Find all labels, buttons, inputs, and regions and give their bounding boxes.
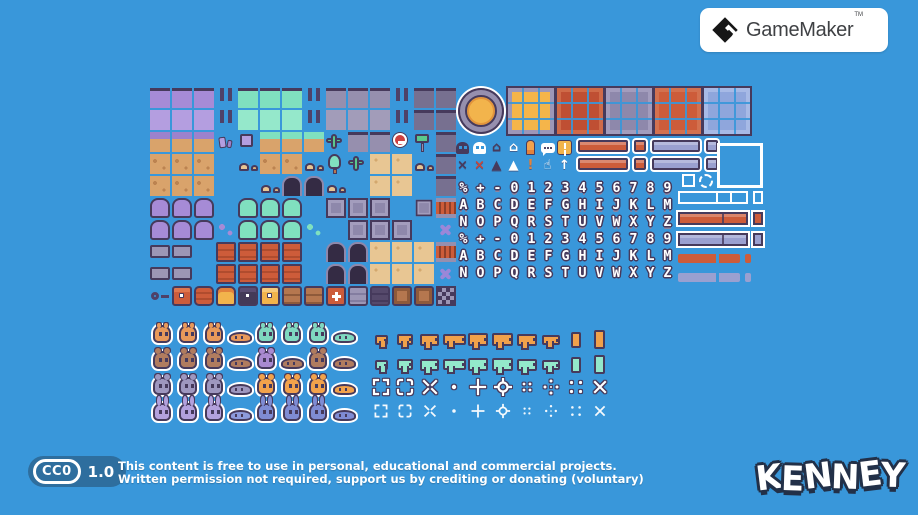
tile-teal-bush bbox=[282, 220, 302, 240]
tile-empty bbox=[414, 176, 434, 196]
character-ears bbox=[313, 323, 317, 328]
font-glyph: T bbox=[557, 265, 574, 282]
character-bunny bbox=[153, 403, 171, 421]
weapon-cell bbox=[393, 352, 417, 377]
font-glyph: I bbox=[591, 197, 608, 214]
font-glyph: H bbox=[574, 248, 591, 265]
character-sprites bbox=[149, 319, 357, 423]
character-cell bbox=[149, 397, 175, 423]
tile-dirt bbox=[172, 176, 192, 196]
weapon-pistol-small bbox=[375, 335, 388, 345]
icon-sprites-grid: ⌂⌂××▲▲!☝↑ bbox=[455, 140, 574, 176]
tile-stone-top bbox=[348, 88, 368, 108]
tile-purple-pebbles bbox=[216, 220, 236, 240]
weapon-rifle bbox=[443, 334, 466, 345]
character-ears bbox=[311, 374, 317, 380]
font-row: %+-0123456789 bbox=[455, 231, 676, 248]
tile-rocks bbox=[304, 154, 324, 174]
crosshair-x-mark-svg bbox=[591, 378, 609, 396]
character-cell bbox=[305, 345, 331, 371]
empty-frame-sprite bbox=[717, 143, 763, 188]
weapon-pistol bbox=[397, 334, 413, 345]
tile-sand bbox=[392, 176, 412, 196]
tile-tree bbox=[326, 154, 346, 174]
font-glyph: 3 bbox=[557, 231, 574, 248]
font-glyph: L bbox=[642, 248, 659, 265]
tile-dark-stone bbox=[436, 88, 456, 108]
progress-lavender-flat bbox=[678, 273, 740, 282]
weapon-cell bbox=[490, 352, 514, 377]
tile-chest-yellow bbox=[260, 286, 280, 306]
tile-purple-dirt-transition bbox=[150, 132, 170, 152]
tile-dark-stone bbox=[436, 110, 456, 130]
character-cell bbox=[175, 397, 201, 423]
character-frog-sleeping bbox=[333, 410, 356, 421]
font-glyph: Y bbox=[642, 265, 659, 282]
gamemaker-icon bbox=[713, 18, 737, 42]
character-ears bbox=[183, 396, 187, 406]
tile-teal-grass-fill bbox=[238, 110, 258, 130]
crosshair-diamond-dots bbox=[539, 399, 563, 423]
font-glyph: 8 bbox=[642, 231, 659, 248]
font-glyph: K bbox=[625, 248, 642, 265]
tile-teal-bush bbox=[260, 198, 280, 218]
character-cell bbox=[331, 319, 357, 345]
character-bunny-sleeping bbox=[229, 410, 252, 421]
weapon-cell bbox=[588, 352, 612, 377]
font-glyph: U bbox=[574, 214, 591, 231]
triangle-icon-white: ▲ bbox=[506, 158, 521, 173]
weapon-cell bbox=[369, 327, 393, 352]
weapon-assault-rifle bbox=[492, 358, 513, 371]
font-glyph: - bbox=[489, 180, 506, 197]
tile-barrel bbox=[194, 286, 214, 306]
weapon-magazine bbox=[571, 357, 581, 373]
character-cell bbox=[175, 319, 201, 345]
progress-lavender-row bbox=[678, 233, 763, 246]
warning-icon bbox=[557, 140, 572, 155]
progress-lavender-flat-row bbox=[678, 273, 763, 282]
font-glyph: W bbox=[608, 214, 625, 231]
tile-shuriken bbox=[436, 220, 456, 240]
font-glyph: D bbox=[506, 197, 523, 214]
tile-purple-block bbox=[238, 132, 258, 152]
arrow-up-icon: ↑ bbox=[557, 158, 572, 173]
font-glyph: + bbox=[472, 180, 489, 197]
font-glyph: P bbox=[489, 265, 506, 282]
weapon-cell bbox=[418, 352, 442, 377]
tile-purple-bush bbox=[194, 220, 214, 240]
character-cell bbox=[149, 319, 175, 345]
weapon-spear bbox=[594, 355, 605, 374]
tile-sand bbox=[392, 154, 412, 174]
character-chick bbox=[283, 377, 301, 395]
license-text: This content is free to use in personal,… bbox=[118, 460, 644, 485]
tile-purple-bush bbox=[172, 198, 192, 218]
tile-teal-pebbles bbox=[304, 220, 324, 240]
character-ears bbox=[155, 348, 161, 354]
tile-shelf bbox=[392, 286, 412, 306]
character-frog bbox=[309, 403, 327, 421]
progress-outline bbox=[678, 191, 748, 204]
skull-icon-dark bbox=[455, 140, 470, 155]
crosshair-corners bbox=[369, 399, 393, 423]
character-cell bbox=[227, 397, 253, 423]
font-glyph: % bbox=[455, 180, 472, 197]
tile-hanging-posts bbox=[304, 110, 324, 123]
tile-doorway-arch bbox=[304, 176, 324, 196]
weapon-cell bbox=[563, 327, 587, 352]
weapon-cell bbox=[442, 352, 466, 377]
cc0-license-badge[interactable]: CC0 1.0 bbox=[28, 456, 126, 487]
font-glyph: R bbox=[523, 265, 540, 282]
ui-panels-row bbox=[508, 88, 750, 134]
font-glyph: F bbox=[540, 248, 557, 265]
kenney-letter: N bbox=[801, 455, 833, 498]
tile-shuriken bbox=[436, 264, 456, 284]
font-glyph: Y bbox=[642, 214, 659, 231]
font-glyph: C bbox=[489, 197, 506, 214]
character-ears bbox=[313, 396, 317, 406]
tile-purple-dirt-transition bbox=[172, 132, 192, 152]
tile-dark-stone bbox=[436, 176, 456, 196]
tile-doorway-arch bbox=[348, 242, 368, 262]
tile-empty bbox=[216, 198, 236, 218]
font-glyph: 0 bbox=[506, 180, 523, 197]
progress-outline-cap bbox=[753, 191, 763, 204]
font-glyph: 5 bbox=[591, 180, 608, 197]
crosshair-corners bbox=[369, 375, 393, 399]
crosshair-x-arrows-svg bbox=[423, 404, 437, 418]
tile-purple-grass-fill bbox=[194, 110, 214, 130]
selection-square-sprite bbox=[682, 174, 695, 187]
font-glyph: 6 bbox=[608, 180, 625, 197]
tile-rocks bbox=[414, 154, 434, 174]
font-glyph: G bbox=[557, 197, 574, 214]
tile-empty bbox=[194, 264, 214, 284]
character-sloth bbox=[281, 358, 304, 369]
tile-dark-stone bbox=[436, 154, 456, 174]
tile-key bbox=[150, 286, 170, 306]
character-ears bbox=[207, 348, 213, 354]
crosshair-quad-dots-svg bbox=[568, 404, 582, 418]
tile-empty bbox=[194, 242, 214, 262]
character-ears bbox=[259, 374, 265, 380]
tile-hanging-posts bbox=[216, 88, 236, 101]
kenney-letter: E bbox=[856, 453, 883, 495]
tile-teal-grass-top bbox=[260, 88, 280, 108]
crosshair-dot-svg bbox=[447, 404, 461, 418]
tile-teal-grass-top bbox=[282, 88, 302, 108]
font-glyph: A bbox=[455, 197, 472, 214]
font-glyph: O bbox=[472, 214, 489, 231]
font-glyph: E bbox=[523, 197, 540, 214]
character-cell bbox=[149, 345, 175, 371]
character-chick-sleeping bbox=[333, 384, 356, 395]
crosshair-target-svg bbox=[495, 404, 509, 418]
tile-purple-grass-top bbox=[150, 88, 170, 108]
tile-metal-panel bbox=[392, 220, 412, 240]
character-ears bbox=[183, 323, 187, 328]
selection-circle-sprite bbox=[699, 174, 713, 188]
font-glyph: M bbox=[659, 248, 676, 265]
kenney-logo[interactable]: KENNEY bbox=[755, 454, 905, 499]
crosshair-plus bbox=[466, 399, 490, 423]
crosshair-dots-grid-svg bbox=[520, 404, 534, 418]
font-glyph: E bbox=[523, 248, 540, 265]
tile-purple-grass-fill bbox=[172, 110, 192, 130]
font-glyph: 8 bbox=[642, 180, 659, 197]
font-glyph: J bbox=[608, 197, 625, 214]
tile-metal-panel bbox=[326, 198, 346, 218]
weapon-smg bbox=[468, 333, 488, 346]
crosshair-x-mark bbox=[588, 375, 612, 399]
bar-lavender-wide bbox=[652, 140, 700, 152]
tile-orange-platform bbox=[238, 242, 258, 262]
font-glyph: Z bbox=[659, 265, 676, 282]
crosshair-corners-svg bbox=[374, 404, 388, 418]
kenney-letter: K bbox=[753, 457, 783, 500]
tile-sand bbox=[414, 242, 434, 262]
cc0-label: CC0 bbox=[42, 464, 72, 479]
tile-stone-top bbox=[326, 88, 346, 108]
weapon-cell bbox=[418, 327, 442, 352]
character-mouse bbox=[153, 377, 171, 395]
character-monkey-sleeping bbox=[229, 358, 252, 369]
character-frog bbox=[283, 403, 301, 421]
weapon-raygun bbox=[420, 359, 439, 371]
gamemaker-logo-card[interactable]: GameMakerTM bbox=[700, 8, 888, 52]
progress-lavender bbox=[678, 233, 748, 246]
character-cell bbox=[279, 319, 305, 345]
cross-icon-red: × bbox=[472, 158, 487, 173]
character-chick bbox=[257, 377, 275, 395]
character-cell bbox=[305, 319, 331, 345]
weapon-cell bbox=[490, 327, 514, 352]
crosshair-x-arrows bbox=[418, 399, 442, 423]
tile-doorway-arch bbox=[348, 264, 368, 284]
tile-purple-dirt-transition bbox=[194, 132, 214, 152]
character-turtle bbox=[283, 325, 301, 343]
character-cell bbox=[253, 397, 279, 423]
tile-drawer bbox=[304, 286, 324, 306]
tile-purple-bush bbox=[172, 220, 192, 240]
font-glyph: N bbox=[455, 214, 472, 231]
font-glyph: + bbox=[472, 231, 489, 248]
font-row: NOPQRSTUVWXYZ bbox=[455, 214, 676, 231]
tile-hanging-posts bbox=[216, 110, 236, 123]
tile-dark-stone bbox=[414, 110, 434, 130]
progress-bars bbox=[678, 191, 763, 292]
tile-teal-grass-top bbox=[238, 88, 258, 108]
coin-button-sprite bbox=[458, 88, 504, 134]
weapon-blaster bbox=[542, 360, 560, 370]
bullet-icon-shape bbox=[526, 140, 535, 155]
tile-hanging-posts bbox=[304, 88, 324, 101]
weapon-cell bbox=[539, 352, 563, 377]
crosshair-corners-round-svg bbox=[398, 404, 412, 418]
tile-empty bbox=[304, 264, 324, 284]
tile-metal-panel bbox=[348, 220, 368, 240]
font-glyph: 2 bbox=[540, 231, 557, 248]
weapon-cell bbox=[442, 327, 466, 352]
character-cell bbox=[175, 345, 201, 371]
progress-orange-cap bbox=[753, 212, 763, 225]
bar-orange-wide bbox=[578, 158, 628, 170]
tile-empty bbox=[216, 154, 236, 174]
tile-sign-post bbox=[414, 132, 434, 152]
crosshair-plus-svg bbox=[471, 404, 485, 418]
character-monkey bbox=[153, 351, 171, 369]
tile-empty bbox=[304, 242, 324, 262]
progress-orange-flat-row bbox=[678, 254, 763, 263]
panel-blue bbox=[704, 88, 750, 134]
license-line-2: Written permission not required, support… bbox=[118, 473, 644, 486]
character-ears bbox=[261, 396, 265, 406]
tile-orange-platform bbox=[282, 242, 302, 262]
tile-orange-platform bbox=[260, 264, 280, 284]
cc0-oval: CC0 bbox=[33, 459, 81, 484]
pixel-font-flat: %+-0123456789ABCDEFGHIJKLMNOPQRSTUVWXYZ bbox=[455, 231, 676, 282]
license-line-1: This content is free to use in personal,… bbox=[118, 460, 644, 473]
panel-yellow bbox=[508, 88, 554, 134]
font-glyph: C bbox=[489, 248, 506, 265]
tile-teal-dirt-transition bbox=[260, 132, 280, 152]
weapon-magazine bbox=[571, 332, 581, 348]
button-bar-row bbox=[578, 140, 718, 152]
tile-cactus bbox=[348, 154, 368, 174]
font-glyph: P bbox=[489, 214, 506, 231]
tile-metal-panel bbox=[348, 198, 368, 218]
font-glyph: % bbox=[455, 231, 472, 248]
weapon-rifle bbox=[443, 359, 466, 370]
character-ears bbox=[287, 396, 291, 406]
font-glyph: 4 bbox=[574, 231, 591, 248]
character-ears bbox=[157, 396, 161, 406]
weapon-cell bbox=[369, 352, 393, 377]
button-bars bbox=[578, 140, 718, 176]
weapon-raygun bbox=[420, 334, 439, 346]
character-cell bbox=[227, 319, 253, 345]
character-bunny bbox=[179, 403, 197, 421]
progress-outline-row bbox=[678, 191, 763, 204]
progress-orange-flat bbox=[678, 254, 740, 263]
character-chick bbox=[309, 377, 327, 395]
tile-orange-fence bbox=[436, 198, 456, 218]
font-glyph: 7 bbox=[625, 180, 642, 197]
tile-stone-fill bbox=[370, 110, 390, 130]
skull-icon-dark-shape bbox=[456, 142, 469, 154]
character-monkey bbox=[205, 351, 223, 369]
progress-orange bbox=[678, 212, 748, 225]
font-glyph: 9 bbox=[659, 180, 676, 197]
crosshair-diamond-dots-svg bbox=[542, 378, 560, 396]
tile-teal-bush bbox=[282, 198, 302, 218]
weapon-cell bbox=[588, 327, 612, 352]
crosshair-x-mark bbox=[588, 399, 612, 423]
character-cell bbox=[253, 371, 279, 397]
tile-gray-platform bbox=[150, 245, 170, 258]
crosshair-x-arrows bbox=[418, 375, 442, 399]
character-squirrel bbox=[153, 325, 171, 343]
tile-purple-bush bbox=[150, 198, 170, 218]
tile-sand bbox=[370, 176, 390, 196]
character-ears bbox=[209, 396, 213, 406]
weapon-spear bbox=[594, 330, 605, 349]
font-glyph: V bbox=[591, 265, 608, 282]
font-glyph: 2 bbox=[540, 180, 557, 197]
character-squirrel bbox=[205, 325, 223, 343]
weapon-assault-rifle bbox=[492, 333, 513, 346]
kenney-letter: Y bbox=[880, 455, 905, 496]
progress-lavender-flat-cap bbox=[745, 273, 751, 282]
font-glyph: B bbox=[472, 248, 489, 265]
font-row: ABCDEFGHIJKLM bbox=[455, 197, 676, 214]
character-mouse bbox=[205, 377, 223, 395]
weapon-carbine bbox=[517, 359, 537, 371]
tile-chest-orange bbox=[172, 286, 192, 306]
font-glyph: L bbox=[642, 197, 659, 214]
crosshair-quad-dots bbox=[563, 399, 587, 423]
tile-doorway-arch bbox=[326, 242, 346, 262]
crosshair-corners-svg bbox=[372, 378, 390, 396]
character-cell bbox=[149, 371, 175, 397]
crosshair-x-mark-svg bbox=[593, 404, 607, 418]
tile-stone-top bbox=[370, 88, 390, 108]
character-butterfly bbox=[257, 351, 275, 369]
crosshair-quad-dots-svg bbox=[567, 378, 585, 396]
bullet-icon bbox=[523, 140, 538, 155]
tile-empty bbox=[304, 198, 324, 218]
tile-hanging-posts bbox=[392, 88, 412, 101]
tile-drawer bbox=[282, 286, 302, 306]
bar-orange-small bbox=[634, 158, 646, 170]
tile-stone-fill bbox=[326, 110, 346, 130]
font-glyph: F bbox=[540, 197, 557, 214]
character-hamster bbox=[309, 351, 327, 369]
font-glyph: S bbox=[540, 214, 557, 231]
tile-empty bbox=[348, 176, 368, 196]
weapon-cell bbox=[466, 352, 490, 377]
character-cell bbox=[201, 371, 227, 397]
weapon-pistol bbox=[397, 359, 413, 370]
tile-orange-platform bbox=[260, 242, 280, 262]
tile-dirt bbox=[150, 154, 170, 174]
font-glyph: A bbox=[455, 248, 472, 265]
tile-sand bbox=[392, 264, 412, 284]
font-row: NOPQRSTUVWXYZ bbox=[455, 265, 676, 282]
font-glyph: 1 bbox=[523, 231, 540, 248]
character-cell bbox=[279, 371, 305, 397]
bar-orange-small bbox=[634, 140, 646, 152]
font-glyph: N bbox=[455, 265, 472, 282]
character-squirrel bbox=[179, 325, 197, 343]
weapon-cell bbox=[515, 327, 539, 352]
tile-purple-bush bbox=[194, 198, 214, 218]
tile-dirt bbox=[150, 176, 170, 196]
character-mouse bbox=[179, 377, 197, 395]
character-ears bbox=[285, 374, 291, 380]
tile-rocks bbox=[238, 154, 258, 174]
font-glyph: Q bbox=[506, 265, 523, 282]
character-turtle bbox=[309, 325, 327, 343]
home-icon-dark: ⌂ bbox=[489, 140, 504, 155]
character-ears bbox=[181, 348, 187, 354]
gamemaker-title: GameMakerTM bbox=[746, 19, 862, 42]
character-cell bbox=[279, 345, 305, 371]
bar-orange-wide bbox=[578, 140, 628, 152]
weapon-sprites bbox=[369, 327, 612, 377]
